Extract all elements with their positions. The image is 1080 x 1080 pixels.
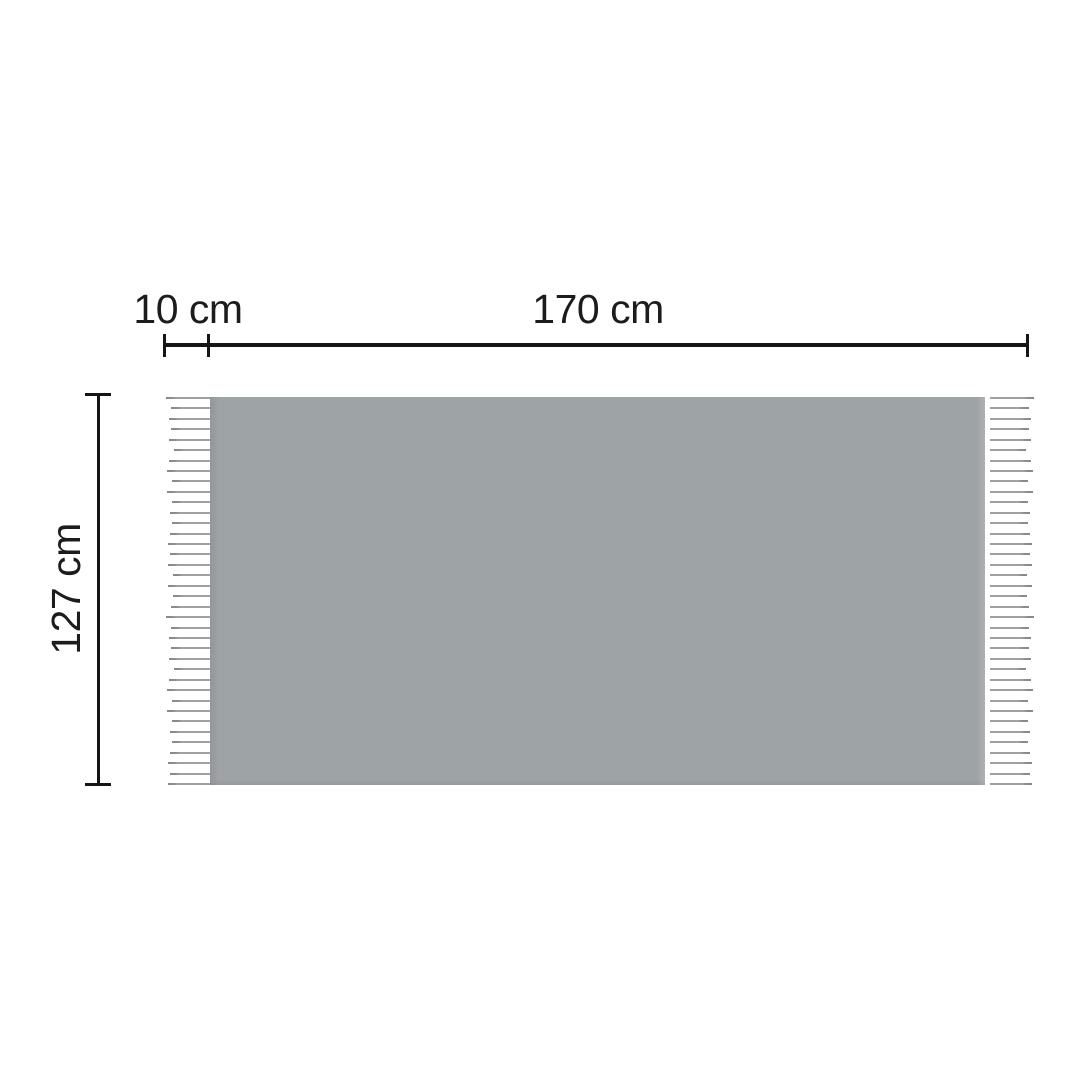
fringe-line [990,741,1028,743]
fringe-line [990,647,1029,649]
height-dimension-line [97,394,100,785]
fringe-line [169,460,210,462]
fringe-line [990,449,1026,451]
fringe-line [990,689,1033,691]
fringe-line [990,731,1030,733]
fringe-line [990,574,1027,576]
fringe-line [167,710,210,712]
fringe-line [990,460,1031,462]
fringe-line [171,627,210,629]
fringe-line [174,668,210,670]
fringe-line [170,773,210,775]
fringe-line [990,491,1033,493]
fringe-line [169,658,210,660]
fringe-line [169,418,210,420]
fringe-line [990,773,1030,775]
fringe-line [167,689,210,691]
fringe-line [990,439,1031,441]
blanket-fringe-left [164,397,210,785]
fringe-line [990,522,1028,524]
fringe-line [990,752,1030,754]
fringe-line [170,731,210,733]
fringe-line [990,720,1028,722]
fringe-line [990,512,1030,514]
fringe-line [168,762,210,764]
fringe-line [990,679,1031,681]
fringe-line [990,533,1030,535]
fringe-line [990,407,1029,409]
fringe-line [172,522,210,524]
fringe-line [167,470,210,472]
fringe-line [171,428,210,430]
fringe-line [170,553,210,555]
fringe-line [990,418,1031,420]
fringe-line [990,783,1032,785]
fringe-line [168,585,210,587]
width-dimension-line [163,343,1029,347]
fringe-line [170,512,210,514]
body-start-tick [207,334,210,357]
fringe-line [990,637,1031,639]
fringe-line [168,564,210,566]
fringe-line [172,720,210,722]
fringe-line [990,585,1032,587]
fringe-line [990,480,1028,482]
fringe-line [170,752,210,754]
fringe-line [990,428,1029,430]
fringe-line [990,606,1029,608]
height-top-tick [85,393,111,396]
fringe-line [169,637,210,639]
fringe-line [168,783,210,785]
fringe-line [990,501,1028,503]
fringe-line [990,397,1034,399]
fringe-line [990,543,1032,545]
fringe-line [169,679,210,681]
fringe-line [171,647,210,649]
fringe-line [990,616,1034,618]
fringe-line [990,627,1029,629]
height-bottom-tick [85,783,111,786]
dimension-diagram: 10 cm 170 cm 127 cm [0,0,1080,1080]
fringe-line [167,491,210,493]
fringe-line [990,710,1033,712]
fringe-line [990,595,1027,597]
fringe-line [172,480,210,482]
fringe-line [170,533,210,535]
fringe-line [990,658,1031,660]
fringe-line [173,574,210,576]
fringe-line [168,543,210,545]
fringe-width-label: 10 cm [133,288,242,330]
fringe-line [172,741,210,743]
fringe-line [171,606,210,608]
fringe-line [990,762,1032,764]
fringe-line [166,616,210,618]
blanket-body [210,397,985,785]
fringe-line [173,595,210,597]
width-label: 170 cm [532,288,663,330]
fringe-line [166,397,210,399]
height-label: 127 cm [45,523,87,654]
fringe-line [990,470,1033,472]
fringe-line [172,700,210,702]
width-end-tick [1026,334,1029,357]
fringe-line [169,439,210,441]
fringe-line [171,407,210,409]
fringe-line [990,668,1026,670]
fringe-line [990,553,1030,555]
fringe-line [990,564,1032,566]
fringe-line [990,700,1028,702]
blanket-fringe-right [990,397,1034,785]
fringe-start-tick [163,334,166,357]
fringe-line [172,501,210,503]
fringe-line [174,449,210,451]
